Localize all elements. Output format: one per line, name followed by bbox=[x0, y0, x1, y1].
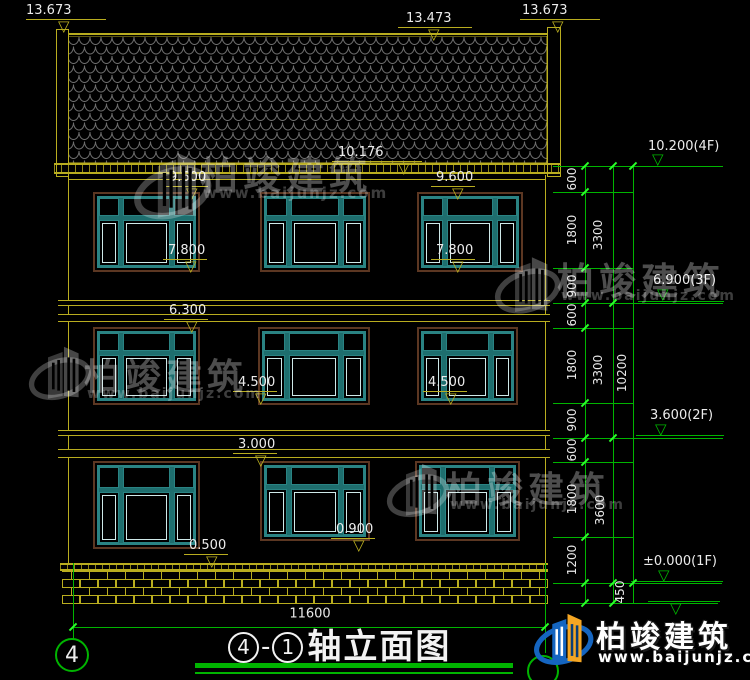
elevation-label: 13.473 bbox=[406, 12, 452, 25]
title-text: 轴立面图 bbox=[307, 630, 451, 664]
dimension-label: 1800 bbox=[565, 350, 579, 381]
elevation-label: ±0.000(1F) bbox=[643, 555, 717, 568]
watermark-brand-url: www.baijunjz.com bbox=[561, 288, 736, 304]
window-pane bbox=[423, 333, 442, 351]
dimension-hline bbox=[553, 328, 634, 329]
window bbox=[93, 461, 200, 549]
dimension-label: 600 bbox=[565, 304, 579, 327]
window bbox=[258, 327, 370, 405]
gable-end-left bbox=[56, 29, 69, 177]
elevation-triangle-icon: ▽ bbox=[255, 454, 267, 467]
window-pane bbox=[289, 333, 339, 351]
dimension-label: 900 bbox=[565, 409, 579, 432]
window bbox=[260, 192, 370, 272]
plinth-bottom-line bbox=[62, 603, 548, 604]
dimension-label: 10200 bbox=[615, 354, 629, 392]
elevation-label: 7.800 bbox=[436, 244, 473, 257]
elevation-triangle-icon: ▽ bbox=[185, 260, 197, 273]
floor-band-3f-top bbox=[58, 300, 550, 306]
plinth-brick-pattern bbox=[62, 571, 548, 603]
dimension-hline bbox=[553, 583, 722, 584]
window-pane bbox=[266, 467, 287, 485]
elevation-triangle-icon: ▽ bbox=[186, 320, 198, 333]
window-pane bbox=[291, 489, 340, 535]
cad-elevation-drawing: 13.673▽13.473▽13.673▽10.176▽9.600▽9.600▽… bbox=[0, 0, 750, 680]
floor-band-2f-top bbox=[58, 430, 550, 436]
dimension-label: 600 bbox=[565, 168, 579, 191]
gable-end-right bbox=[547, 27, 561, 177]
watermark-logo-icon bbox=[386, 454, 453, 528]
window-pane bbox=[289, 355, 339, 399]
elevation-level-line bbox=[631, 581, 723, 582]
window-pane bbox=[343, 467, 364, 485]
window-pane bbox=[446, 333, 490, 351]
elevation-label: 7.800 bbox=[168, 244, 205, 257]
window-pane bbox=[264, 333, 285, 351]
window-frame bbox=[262, 331, 366, 401]
elevation-label: 3.000 bbox=[238, 438, 275, 451]
elevation-triangle-icon: ▽ bbox=[58, 20, 70, 33]
window-pane bbox=[99, 492, 119, 543]
window-pane bbox=[343, 333, 364, 351]
watermark-brand-url: www.baijunjz.com bbox=[203, 184, 388, 202]
window-frame bbox=[264, 196, 366, 268]
bottom-dimension-extension bbox=[73, 563, 74, 640]
dimension-label: 600 bbox=[565, 439, 579, 462]
dimension-label: 1800 bbox=[565, 215, 579, 246]
dimension-label: 3300 bbox=[591, 220, 605, 251]
elevation-label: 6.300 bbox=[169, 304, 206, 317]
elevation-level-line bbox=[648, 601, 720, 602]
elevation-triangle-icon: ▽ bbox=[445, 392, 457, 405]
brand-url: www.baijunjz.com bbox=[598, 648, 750, 666]
axis-bubble: 4 bbox=[55, 638, 89, 672]
window-pane bbox=[343, 355, 364, 399]
window-pane bbox=[291, 220, 340, 266]
window-frame bbox=[97, 465, 196, 545]
dimension-label: 3300 bbox=[591, 355, 605, 386]
window-pane bbox=[123, 492, 170, 543]
dimension-hline bbox=[553, 403, 634, 404]
elevation-triangle-icon: ▽ bbox=[452, 260, 464, 273]
roof-ridge-line bbox=[68, 33, 547, 35]
window-pane bbox=[291, 467, 340, 485]
elevation-label: 0.500 bbox=[189, 539, 226, 552]
window-pane bbox=[497, 198, 517, 216]
window-pane bbox=[99, 220, 119, 266]
window-pane bbox=[99, 467, 119, 488]
floor-band-3f-bottom bbox=[58, 314, 550, 322]
window-pane bbox=[493, 333, 512, 351]
dimension-label: 450 bbox=[613, 581, 627, 604]
title-dash: - bbox=[261, 632, 270, 662]
watermark-brand-url: www.baijunjz.com bbox=[87, 386, 262, 402]
window-pane bbox=[423, 198, 443, 216]
window-pane bbox=[174, 467, 194, 488]
dimension-label: 1200 bbox=[565, 545, 579, 576]
elevation-triangle-icon: ▽ bbox=[353, 539, 365, 552]
floor-band-2f-bottom bbox=[58, 449, 550, 458]
bottom-dimension-label: 11600 bbox=[289, 607, 330, 622]
window-pane bbox=[343, 220, 364, 266]
elevation-label: 13.673 bbox=[522, 4, 568, 17]
elevation-label: 13.673 bbox=[26, 4, 72, 17]
title-axis-circle-4: 4 bbox=[228, 632, 259, 663]
drawing-title: 4 - 1 轴立面图 bbox=[228, 630, 451, 664]
elevation-label: 0.900 bbox=[336, 523, 373, 536]
title-underline-thin bbox=[195, 672, 513, 674]
window-pane bbox=[99, 198, 119, 216]
elevation-triangle-icon: ▽ bbox=[398, 162, 410, 175]
dimension-hline bbox=[553, 192, 634, 193]
watermark-brand-url: www.baijunjz.com bbox=[450, 497, 625, 513]
elevation-triangle-icon: ▽ bbox=[552, 20, 564, 33]
window-pane bbox=[266, 489, 287, 535]
dimension-hline bbox=[553, 537, 634, 538]
elevation-triangle-icon: ▽ bbox=[658, 569, 670, 582]
elevation-label: 9.600 bbox=[436, 171, 473, 184]
plinth-top-band bbox=[60, 563, 548, 571]
elevation-triangle-icon: ▽ bbox=[452, 187, 464, 200]
elevation-triangle-icon: ▽ bbox=[428, 28, 440, 41]
window-pane bbox=[123, 467, 170, 488]
elevation-triangle-icon: ▽ bbox=[206, 555, 218, 568]
window bbox=[417, 327, 518, 405]
brand-logo-icon bbox=[533, 605, 597, 675]
title-axis-circle-1: 1 bbox=[272, 632, 303, 663]
title-underline-thick bbox=[195, 663, 513, 668]
window-pane bbox=[493, 355, 512, 399]
elevation-label: 4.500 bbox=[428, 376, 465, 389]
window-pane bbox=[266, 220, 287, 266]
elevation-triangle-icon: ▽ bbox=[652, 153, 664, 166]
watermark-logo-icon bbox=[494, 247, 564, 325]
window-pane bbox=[174, 492, 194, 543]
elevation-level-line bbox=[636, 435, 724, 436]
elevation-triangle-icon: ▽ bbox=[655, 423, 667, 436]
